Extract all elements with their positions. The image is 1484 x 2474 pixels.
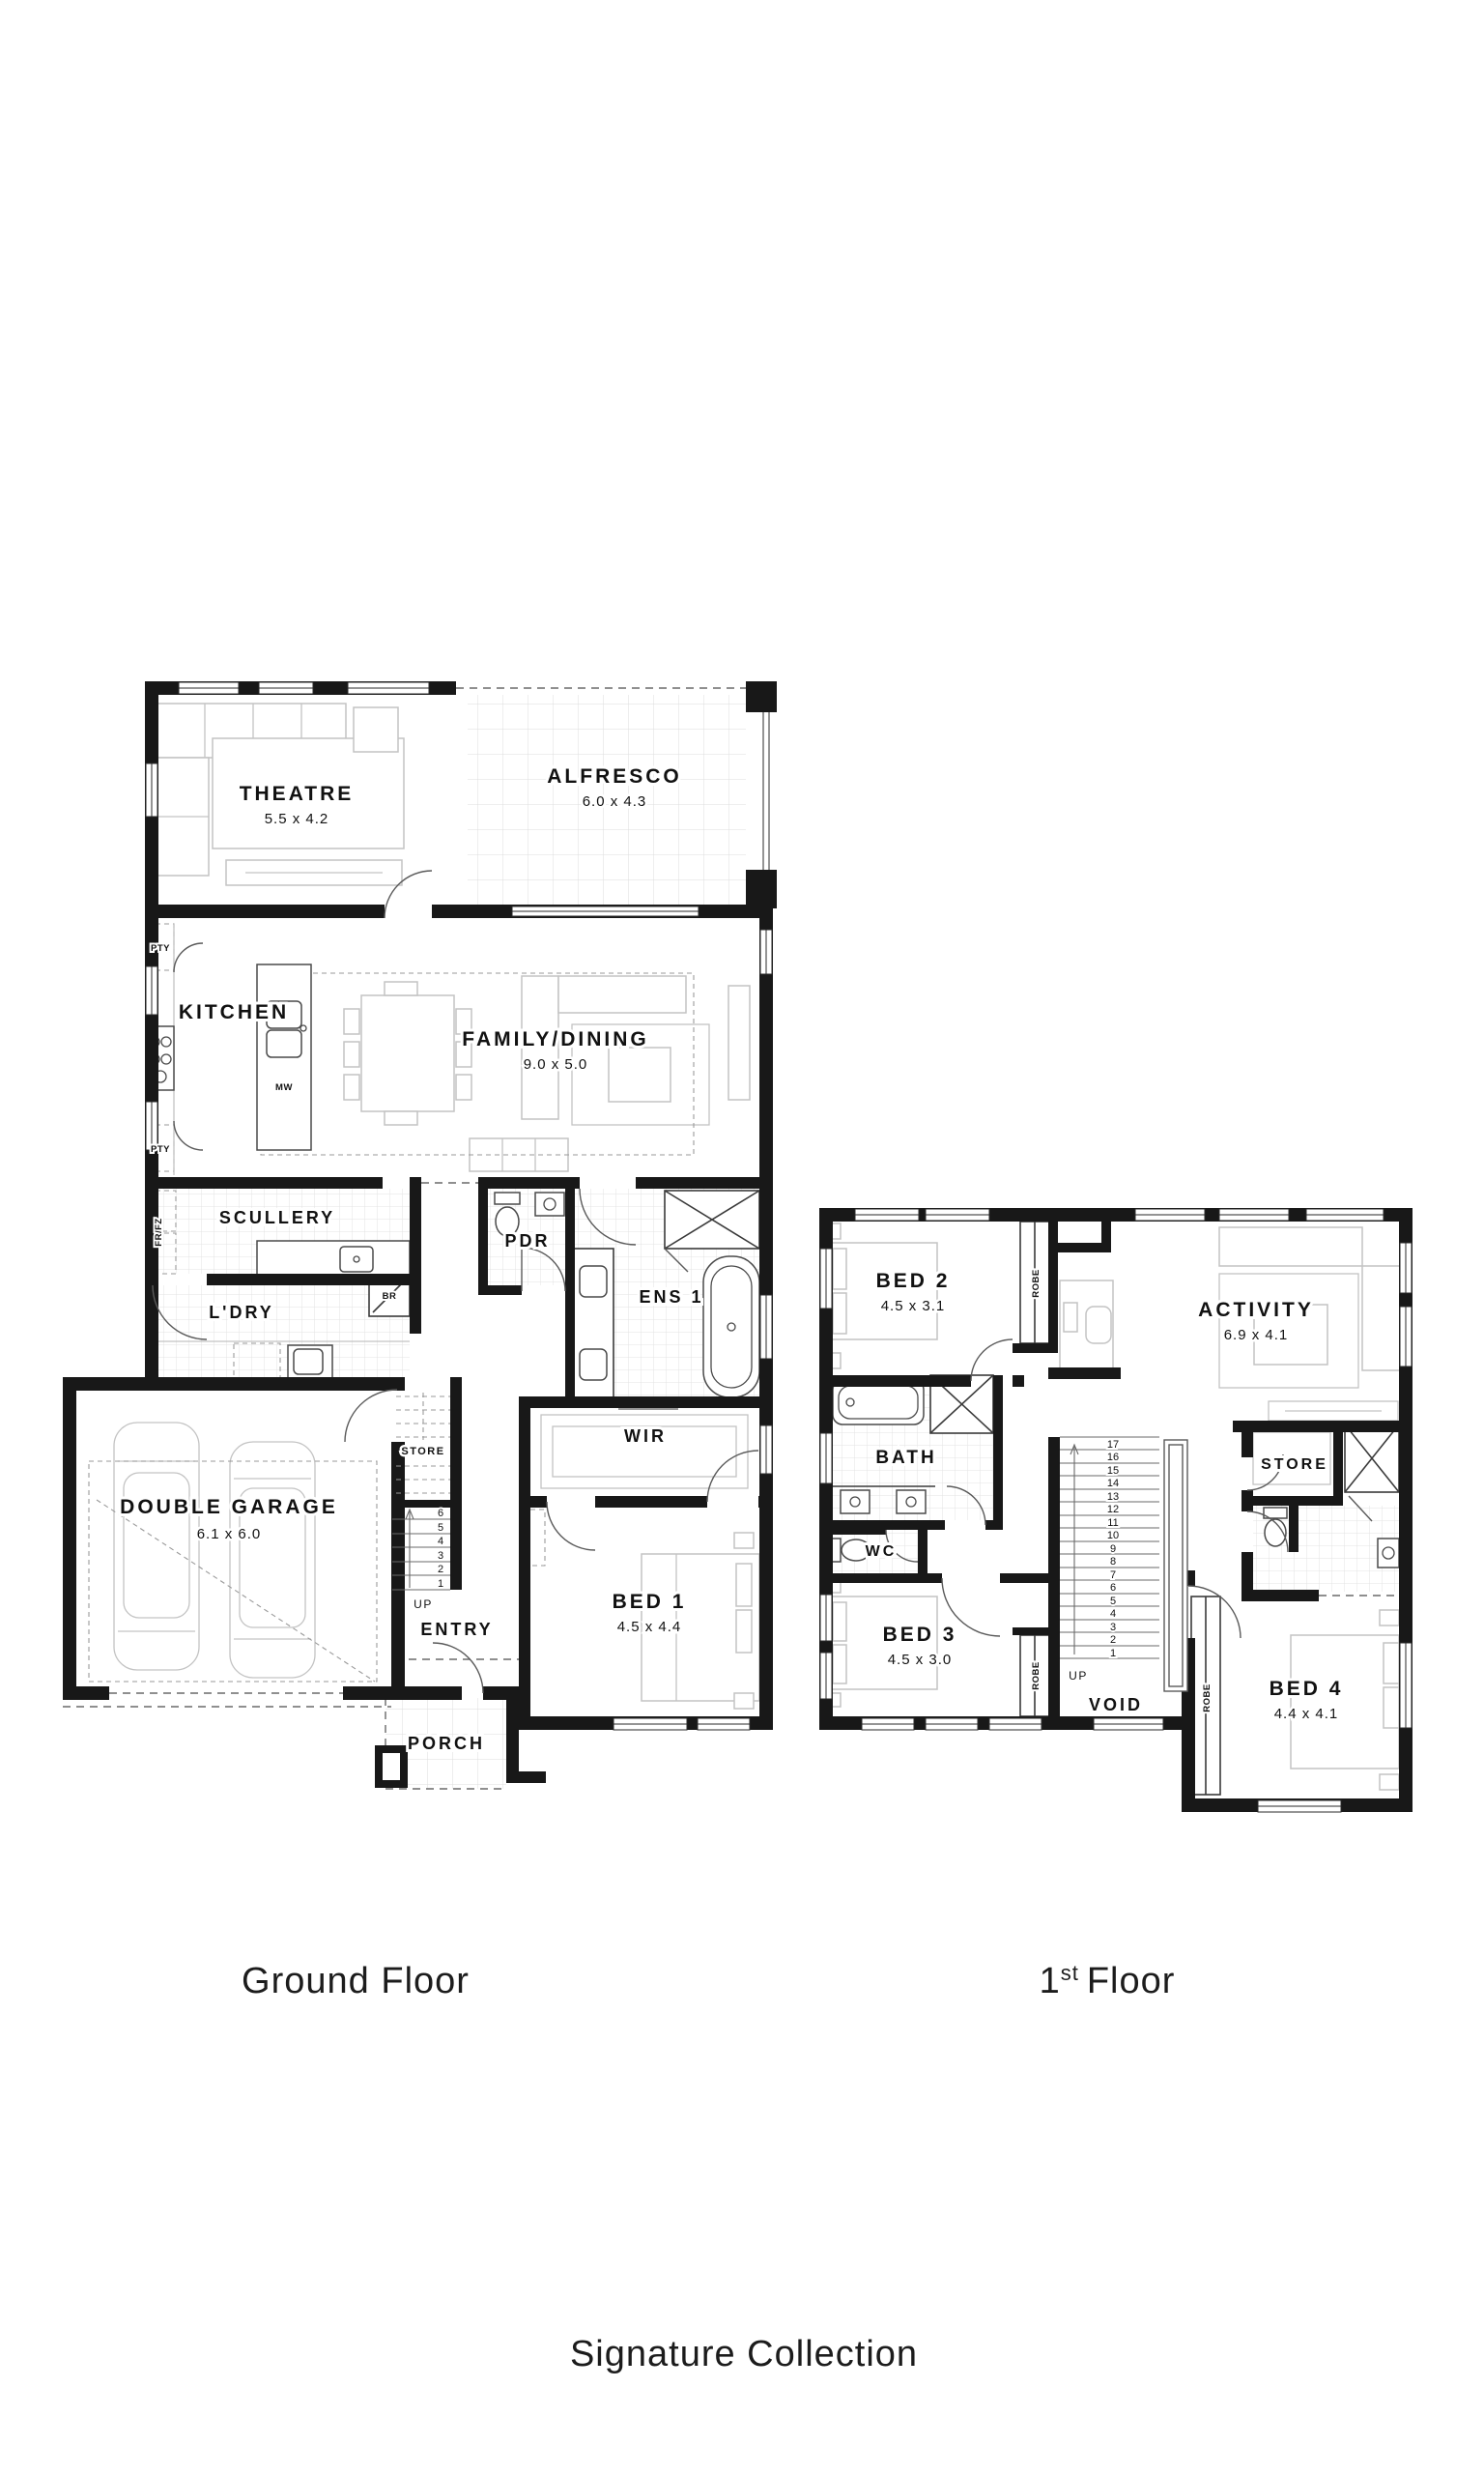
room-label-bed1: BED 1 <box>613 1591 687 1613</box>
caption-first-floor: 1stFloor <box>1040 1961 1176 2001</box>
caption-ground-floor: Ground Floor <box>242 1961 470 2001</box>
wc-toilet-icon <box>829 1539 870 1562</box>
room-label-theatre: THEATRE <box>240 783 355 805</box>
first-stair-14: 14 <box>1107 1478 1119 1489</box>
floorplan-page: 6 5 4 3 2 1 THEATRE 5.5 x 4.2 ALFRESCO 6… <box>0 0 1484 2474</box>
room-label-ldry: L'DRY <box>209 1303 274 1322</box>
room-label-garage: DOUBLE GARAGE <box>120 1496 338 1518</box>
label-frfz: FR/FZ <box>154 1218 164 1246</box>
label-robe-bed2: ROBE <box>1031 1269 1042 1297</box>
label-mw: MW <box>275 1082 293 1093</box>
ens1-bath-icon <box>703 1256 759 1397</box>
room-label-bed3: BED 3 <box>883 1624 957 1646</box>
room-dims-theatre: 5.5 x 4.2 <box>265 811 329 827</box>
ground-stair-6: 6 <box>438 1508 443 1519</box>
first-stair-4: 4 <box>1110 1608 1116 1620</box>
ground-stair-3: 3 <box>438 1550 443 1562</box>
room-dims-bed2: 4.5 x 3.1 <box>881 1298 946 1314</box>
first-stair-9: 9 <box>1110 1543 1116 1555</box>
room-dims-bed4: 4.4 x 4.1 <box>1274 1706 1339 1722</box>
ens1-shower-icon <box>665 1191 759 1249</box>
island-bench <box>257 964 311 1150</box>
room-label-pdr: PDR <box>504 1231 550 1251</box>
room-label-store-first: STORE <box>1261 1456 1328 1473</box>
room-label-entry: ENTRY <box>420 1620 493 1639</box>
floorplan-canvas: 6 5 4 3 2 1 THEATRE 5.5 x 4.2 ALFRESCO 6… <box>0 0 1484 2474</box>
room-label-wc: WC <box>866 1543 898 1560</box>
room-label-store-ground: STORE <box>401 1446 444 1457</box>
alfresco-open-edge <box>763 712 769 870</box>
first-stair-12: 12 <box>1107 1504 1119 1515</box>
room-label-scullery: SCULLERY <box>219 1208 335 1227</box>
first-stair-7: 7 <box>1110 1569 1116 1581</box>
ground-floor-plan: 6 5 4 3 2 1 THEATRE 5.5 x 4.2 ALFRESCO 6… <box>63 681 777 1789</box>
first-stair-10: 10 <box>1107 1530 1119 1541</box>
room-label-porch: PORCH <box>408 1734 485 1753</box>
first-stair-13: 13 <box>1107 1491 1119 1503</box>
room-label-bed2: BED 2 <box>876 1270 951 1292</box>
room-label-alfresco: ALFRESCO <box>547 765 682 788</box>
room-label-void: VOID <box>1089 1695 1143 1714</box>
ground-stair-5: 5 <box>438 1522 443 1534</box>
ens1-vanity-icon <box>573 1249 614 1397</box>
first-stair-11: 11 <box>1107 1517 1118 1529</box>
label-up-ground: UP <box>414 1597 433 1611</box>
label-robe-bed3: ROBE <box>1031 1661 1042 1689</box>
room-label-activity: ACTIVITY <box>1198 1299 1314 1321</box>
ens4-toilet-icon <box>1264 1508 1287 1546</box>
label-up-first: UP <box>1069 1669 1088 1683</box>
first-stairs[interactable]: 17 16 15 14 13 12 11 10 9 8 7 6 5 4 3 2 … <box>1060 1437 1187 1691</box>
first-stair-16: 16 <box>1107 1452 1119 1463</box>
label-br: BR <box>383 1291 397 1302</box>
first-stair-1: 1 <box>1110 1648 1116 1659</box>
room-dims-bed1: 4.5 x 4.4 <box>617 1619 682 1635</box>
first-floor-plan: 17 16 15 14 13 12 11 10 9 8 7 6 5 4 3 2 … <box>819 1208 1413 1812</box>
ground-stair-2: 2 <box>438 1564 443 1575</box>
first-stair-6: 6 <box>1110 1582 1116 1594</box>
room-dims-bed3: 4.5 x 3.0 <box>888 1652 953 1668</box>
caption-first-sup: st <box>1061 1961 1079 1985</box>
room-label-family-dining: FAMILY/DINING <box>462 1028 648 1050</box>
porch-post <box>383 1753 400 1780</box>
room-label-bed4: BED 4 <box>1270 1678 1344 1700</box>
first-stair-15: 15 <box>1107 1465 1119 1477</box>
ground-stair-4: 4 <box>438 1536 443 1547</box>
pdr-toilet-icon <box>495 1193 520 1236</box>
label-robe-bed4: ROBE <box>1202 1683 1213 1712</box>
first-stair-17: 17 <box>1107 1439 1119 1451</box>
room-dims-activity: 6.9 x 4.1 <box>1224 1327 1289 1343</box>
first-stair-2: 2 <box>1110 1634 1116 1646</box>
room-dims-alfresco: 6.0 x 4.3 <box>583 793 647 810</box>
ground-stair-1: 1 <box>438 1578 443 1590</box>
caption-first-num: 1 <box>1040 1961 1061 2001</box>
room-dims-family-dining: 9.0 x 5.0 <box>524 1056 588 1073</box>
captions: Ground Floor 1stFloor Signature Collecti… <box>242 1961 1175 2374</box>
room-label-wir: WIR <box>624 1426 667 1446</box>
caption-collection: Signature Collection <box>570 2334 918 2374</box>
caption-first-word: Floor <box>1087 1961 1176 2001</box>
room-label-kitchen: KITCHEN <box>179 1001 289 1023</box>
first-stair-5: 5 <box>1110 1596 1116 1607</box>
room-label-ens1: ENS 1 <box>639 1287 703 1307</box>
first-stair-8: 8 <box>1110 1556 1116 1568</box>
room-dims-garage: 6.1 x 6.0 <box>197 1526 262 1542</box>
room-label-bath: BATH <box>875 1448 936 1468</box>
label-pty-bottom: PTY <box>151 1144 170 1155</box>
label-pty-top: PTY <box>151 943 170 954</box>
first-stair-3: 3 <box>1110 1622 1116 1633</box>
